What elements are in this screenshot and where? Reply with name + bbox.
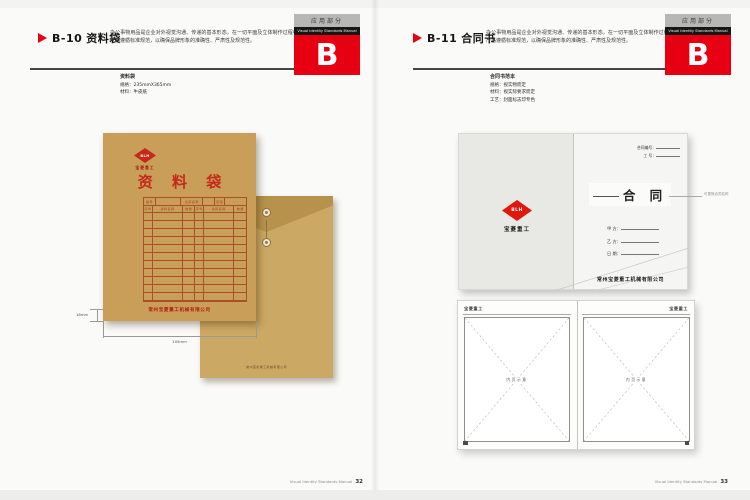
th-seq: 序号 — [144, 206, 153, 213]
table-blank-row — [144, 277, 246, 285]
blank-line — [593, 193, 619, 197]
contract-back-cover: BLH 宝菱重工 — [459, 134, 574, 289]
envelope-table-body — [144, 213, 246, 301]
table-header-row: 编号 全宗名称 密级 — [144, 198, 246, 206]
spec-title: 合同书范本 — [490, 74, 535, 81]
placeholder-label: 内页示意 — [504, 377, 529, 383]
spec-size: 规格：235mmX365mm — [120, 82, 171, 89]
section-description-right: 办公事物用品是企业对外视觉沟通、传递的基本形态，在一切平面及立体制作过程中都应严… — [486, 29, 684, 45]
dim-tick — [90, 321, 104, 322]
table-blank-row — [144, 253, 246, 261]
page-number: 33 — [720, 479, 728, 485]
tab-chapter-letter: B — [665, 35, 731, 75]
spec-block-left: 资料袋 规格：235mmX365mm 材料：牛皮纸 — [120, 74, 171, 97]
brand-diamond-logo-icon: BLH — [134, 148, 156, 163]
th-seq: 序号 — [195, 206, 204, 213]
contract-parties-block: 甲 方： 乙 方： 日 期： — [607, 226, 659, 264]
inner-brand-right: 宝菱重工 — [669, 306, 688, 312]
spec-process: 工艺：封面标志印专色 — [490, 97, 535, 104]
date-label: 日 期： — [607, 251, 621, 256]
section-code: B-10 — [52, 32, 82, 45]
table-blank-row — [144, 261, 246, 269]
footer-manual-label: Visual Identity Standards Manual — [290, 479, 353, 484]
contract-cover-mockup: BLH 宝菱重工 合同编号： 工 号： 合 同 甲 方： 乙 方： 日 期： 常… — [458, 133, 688, 290]
chapter-tab-right: 应用部分 Visual Identity Standards Manual B — [665, 14, 731, 75]
cover-company-name: 常州宝菱重工机械有限公司 — [574, 276, 687, 283]
logo-letters: BLH — [511, 208, 523, 213]
page-number: 32 — [355, 479, 363, 485]
logo-letters: BLH — [140, 154, 149, 158]
annotation-text: 可更换合同名称 — [704, 192, 729, 197]
inner-spread-gutter — [577, 301, 578, 449]
table-blank-row — [144, 245, 246, 253]
contract-title: 合 同 — [623, 185, 667, 204]
party-a-label: 甲 方： — [607, 226, 621, 231]
image-placeholder-right: 内页示意 — [583, 317, 690, 442]
th-doc-name: 资料名称 — [204, 206, 234, 213]
dim-label-bottom: 105mm — [103, 339, 256, 344]
placeholder-label: 内页示意 — [624, 377, 649, 383]
th-doc-name: 资料名称 — [153, 206, 183, 213]
table-blank-row — [144, 237, 246, 245]
image-placeholder-left: 内页示意 — [464, 317, 570, 442]
section-header-right: B-11合同书 — [413, 30, 496, 46]
inner-header-rule-right — [582, 314, 690, 315]
spec-block-right: 合同书范本 规格：视实物而定 材料：视实际要求而定 工艺：封面标志印专色 — [490, 74, 535, 104]
spec-size: 规格：视实物而定 — [490, 82, 535, 89]
blank-line — [621, 239, 659, 243]
th-blank — [156, 198, 181, 206]
spec-material: 材料：视实际要求而定 — [490, 89, 535, 96]
annotation-leader-line — [669, 196, 702, 197]
party-a-row: 甲 方： — [607, 226, 659, 239]
envelope-company-name: 常州宝菱重工机械有限公司 — [103, 307, 256, 313]
section-header-left: B-10资料袋 — [38, 30, 121, 46]
table-blank-row — [144, 221, 246, 229]
table-blank-row — [144, 229, 246, 237]
th-qty: 数量 — [183, 206, 195, 213]
blank-line — [621, 226, 659, 230]
th-fonds-name: 全宗名称 — [181, 198, 203, 206]
th-secrecy: 密级 — [215, 198, 225, 206]
tab-section-label: 应用部分 — [294, 14, 360, 27]
page-number-square-right — [685, 441, 690, 446]
spec-material: 材料：牛皮纸 — [120, 89, 171, 96]
footer-right: Visual Identity Standards Manual33 — [528, 479, 728, 485]
page-gutter — [371, 0, 379, 500]
manual-spread: B-10资料袋 办公事物用品是企业对外视觉沟通、传递的基本形态，在一切平面及立体… — [0, 0, 750, 500]
tab-section-label: 应用部分 — [665, 14, 731, 27]
th-blank — [225, 198, 246, 206]
serial-no-row: 工 号： — [637, 152, 680, 160]
contract-inner-pages-mockup: 宝菱重工 宝菱重工 内页示意 内页示意 — [457, 300, 695, 450]
footer-manual-label: Visual Identity Standards Manual — [655, 479, 718, 484]
envelope-title: 资 料 袋 — [103, 171, 256, 192]
blank-line — [656, 145, 680, 149]
section-description-left: 办公事物用品是企业对外视觉沟通、传递的基本形态，在一切平面及立体制作过程中都应严… — [110, 29, 308, 45]
table-blank-row — [144, 213, 246, 221]
date-row: 日 期： — [607, 251, 659, 264]
contract-no-label: 合同编号： — [637, 145, 656, 150]
th-qty: 数量 — [234, 206, 246, 213]
th-number: 编号 — [144, 198, 156, 206]
serial-no-label: 工 号： — [643, 153, 656, 158]
header-rule-left — [30, 68, 294, 70]
dim-label-side: 18mm — [76, 312, 88, 317]
envelope-content-table: 编号 全宗名称 密级 序号 资料名称 数量 序号 资料名称 数量 — [143, 197, 247, 302]
logo-caption: 宝菱重工 — [487, 225, 547, 233]
inner-brand-left: 宝菱重工 — [464, 306, 483, 312]
red-arrow-icon — [38, 33, 47, 43]
tab-manual-label: Visual Identity Standards Manual — [665, 27, 731, 35]
brand-diamond-logo-icon: BLH — [502, 200, 532, 221]
blank-line — [656, 153, 680, 157]
tab-chapter-letter: B — [294, 35, 360, 75]
tab-manual-label: Visual Identity Standards Manual — [294, 27, 360, 35]
contract-number-block: 合同编号： 工 号： — [637, 144, 680, 160]
envelope-clasp-bottom — [262, 238, 271, 247]
page-number-square-left — [463, 441, 468, 446]
envelope-front-mockup: BLH 宝菱重工 资 料 袋 编号 全宗名称 密级 序号 资料名称 数量 序号 … — [103, 133, 256, 321]
contract-no-row: 合同编号： — [637, 144, 680, 152]
footer-left: Visual Identity Standards Manual32 — [163, 479, 363, 485]
party-b-row: 乙 方： — [607, 239, 659, 252]
envelope-back-imprint: 常州宝菱重工机械有限公司 — [200, 365, 333, 369]
dim-line-side — [97, 309, 98, 321]
envelope-clasp-top — [262, 208, 271, 217]
table-blank-row — [144, 269, 246, 277]
table-subheader-row: 序号 资料名称 数量 序号 资料名称 数量 — [144, 206, 246, 213]
party-b-label: 乙 方： — [607, 239, 621, 244]
inner-header-rule-left — [463, 314, 571, 315]
dim-line-bottom — [103, 336, 256, 337]
spec-title: 资料袋 — [120, 74, 171, 81]
blank-line — [621, 251, 659, 255]
chapter-tab-left: 应用部分 Visual Identity Standards Manual B — [294, 14, 360, 75]
scan-bottom-edge — [0, 490, 750, 500]
table-blank-row — [144, 293, 246, 301]
th-blank — [203, 198, 215, 206]
contract-title-box: 合 同 — [589, 183, 671, 206]
red-arrow-icon — [413, 33, 422, 43]
header-rule-right — [413, 68, 665, 70]
table-blank-row — [144, 285, 246, 293]
section-code: B-11 — [427, 32, 457, 45]
